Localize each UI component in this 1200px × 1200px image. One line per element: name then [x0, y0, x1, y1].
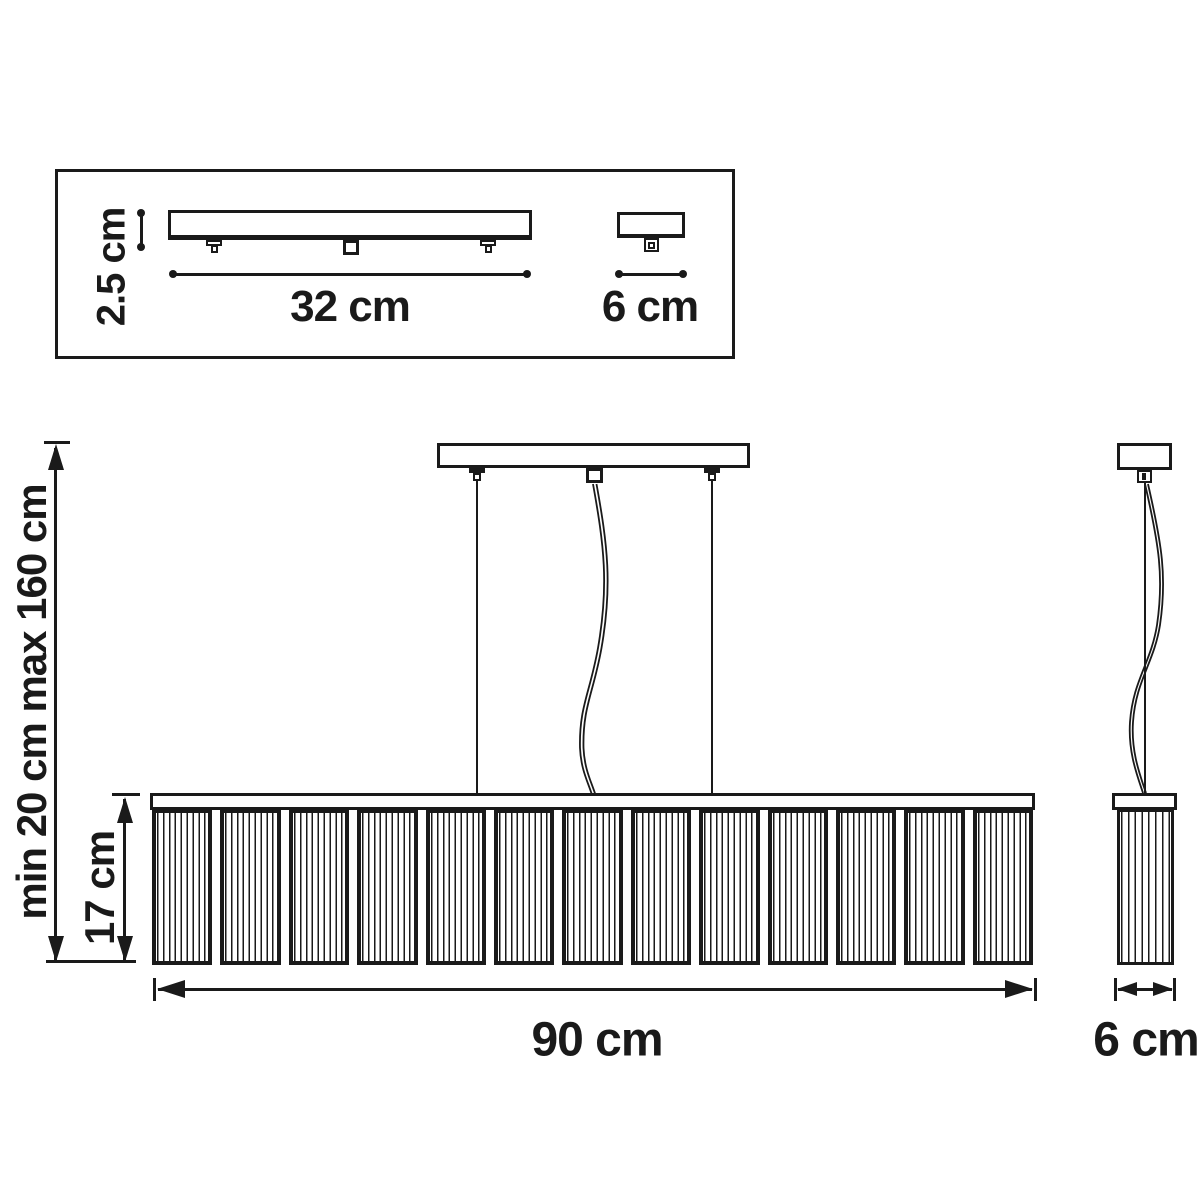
dim-plate-length-dot-right: [523, 270, 531, 278]
shade-panel: [220, 809, 280, 965]
shade-panel: [357, 809, 417, 965]
dim-plate-height-label: 2.5 cm: [90, 208, 135, 327]
dim-shade-label: 17 cm: [76, 831, 124, 945]
suspension-wire-right: [711, 481, 713, 794]
suspension-wire-side: [1144, 483, 1146, 794]
shade-panel: [426, 809, 486, 965]
dim-length-arrow-right: [1005, 980, 1033, 998]
dim-plate-side-label: 6 cm: [602, 282, 698, 332]
shade-body-side: [1117, 809, 1174, 965]
shade-rail-side: [1112, 793, 1177, 810]
shade-panel: [768, 809, 828, 965]
shade-rail-front: [150, 793, 1035, 810]
dim-plate-length-line: [174, 273, 526, 276]
shade-panel: [562, 809, 622, 965]
cord-connector-front: [586, 468, 603, 483]
dim-plate-side-dot-left: [615, 270, 623, 278]
dim-susp-label: min 20 cm max 160 cm: [8, 484, 56, 919]
dim-plate-side-line: [620, 273, 682, 276]
dim-depth-label: 6 cm: [1093, 1013, 1198, 1068]
suspension-wire-left: [476, 481, 478, 794]
plate-side-view: [617, 212, 685, 238]
shade-panel: [836, 809, 896, 965]
canopy-front: [437, 443, 750, 468]
dim-length-tick-right: [1034, 978, 1037, 1001]
shade-panel: [699, 809, 759, 965]
dim-plate-height-dot-top: [137, 209, 145, 217]
canopy-side: [1117, 443, 1172, 470]
dim-depth-arrow-left: [1117, 982, 1137, 996]
shade-panel: [494, 809, 554, 965]
dim-length-tick-left: [153, 978, 156, 1001]
dim-plate-height-dot-bottom: [137, 243, 145, 251]
dim-left-tick-bottom: [46, 960, 136, 963]
shade-panel: [631, 809, 691, 965]
dim-plate-length-dot-left: [169, 270, 177, 278]
dim-length-arrow-left: [157, 980, 185, 998]
dim-susp-arrow-down: [48, 936, 64, 962]
dim-length-line: [158, 988, 1032, 991]
dim-shade-tick-top: [112, 793, 140, 796]
dim-shade-arrow-up: [117, 797, 133, 823]
shade-panel: [289, 809, 349, 965]
shade-panels-front: [152, 809, 1033, 965]
dim-depth-arrow-right: [1153, 982, 1173, 996]
dim-plate-side-dot-right: [679, 270, 687, 278]
dim-length-label: 90 cm: [531, 1013, 662, 1068]
dim-susp-arrow-up: [48, 444, 64, 470]
shade-panel: [152, 809, 212, 965]
plate-front-view: [168, 210, 532, 240]
dim-plate-length-label: 32 cm: [290, 282, 410, 332]
dimension-drawing: 2.5 cm 32 cm 6 cm: [0, 0, 1200, 1200]
shade-panel: [973, 809, 1033, 965]
cord-connector-side-stem: [1142, 473, 1146, 480]
shade-panel: [904, 809, 964, 965]
dim-depth-tick-right: [1173, 978, 1176, 1001]
